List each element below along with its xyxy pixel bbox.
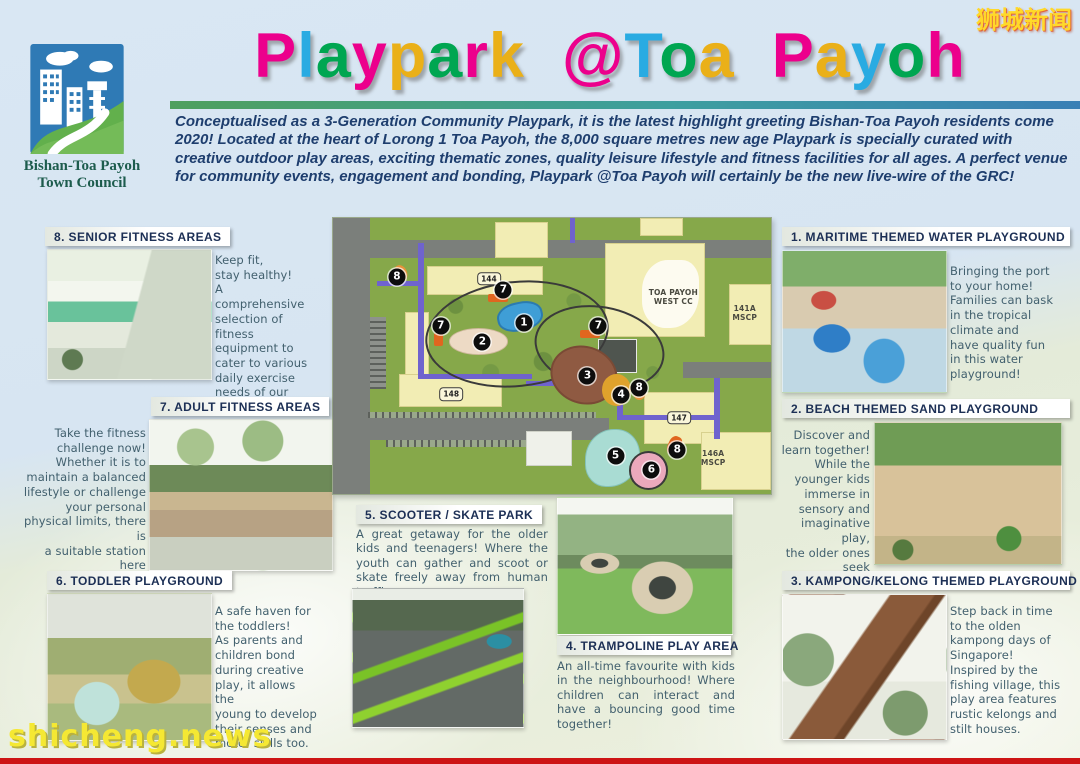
- map-footpath: [714, 378, 720, 439]
- map-building: [526, 431, 572, 467]
- section-header-scooter: 5. SCOOTER / SKATE PARK: [356, 505, 542, 524]
- map-marker-8: 8: [631, 380, 648, 397]
- map-marker-2: 2: [474, 334, 491, 351]
- town-council-name: Bishan-Toa Payoh Town Council: [2, 158, 162, 193]
- map-marker-7: 7: [432, 318, 449, 335]
- map-footpath: [570, 218, 576, 243]
- news-site-watermark-cn: 狮城新闻: [976, 8, 1072, 32]
- title-letter: y: [851, 21, 887, 91]
- scooter-park-rendering: [352, 588, 524, 728]
- section-header-adult-fitness: 7. ADULT FITNESS AREAS: [151, 397, 329, 416]
- section-header-trampoline: 4. TRAMPOLINE PLAY AREA: [557, 636, 731, 655]
- section-header-maritime: 1. MARITIME THEMED WATER PLAYGROUND: [782, 227, 1070, 246]
- map-road: [333, 218, 370, 494]
- town-council-logo-icon: [30, 44, 124, 154]
- section-body-trampoline: An all-time favourite with kids in the n…: [557, 659, 735, 731]
- section-body-maritime: Bringing the port to your home! Families…: [950, 264, 1062, 382]
- map-block-badge: 148: [439, 388, 463, 402]
- map-parking-strip: [370, 317, 385, 389]
- title-letter: P: [254, 21, 297, 91]
- title-letter: p: [388, 21, 427, 91]
- map-marker-3: 3: [579, 368, 596, 385]
- kampong-playground-rendering: [782, 594, 947, 740]
- map-marker-5: 5: [607, 448, 624, 465]
- title-letter: a: [316, 21, 352, 91]
- title-letter: y: [352, 21, 388, 91]
- map-marker-8: 8: [669, 441, 686, 458]
- trampoline-area-rendering: [557, 497, 733, 635]
- title-underline-bar: [170, 101, 1080, 109]
- title-letter: r: [463, 21, 489, 91]
- section-header-senior-fitness: 8. SENIOR FITNESS AREAS: [45, 227, 230, 246]
- map-label: TOA PAYOH WEST CC: [649, 288, 698, 306]
- map-marker-7: 7: [590, 318, 607, 335]
- title-letter: P: [772, 21, 815, 91]
- intro-paragraph: Conceptualised as a 3-Generation Communi…: [175, 113, 1073, 186]
- title-letter: @: [562, 21, 624, 91]
- title-letter: a: [427, 21, 463, 91]
- news-site-watermark-url: shicheng.news: [8, 722, 272, 752]
- map-label: 146A MSCP: [701, 449, 726, 467]
- bottom-red-bar: [0, 758, 1080, 764]
- map-marker-4: 4: [613, 386, 630, 403]
- map-building: [640, 218, 684, 236]
- section-header-toddler: 6. TODDLER PLAYGROUND: [47, 571, 232, 590]
- sand-playground-rendering: [874, 422, 1062, 565]
- map-marker-6: 6: [643, 462, 660, 479]
- map-marker-7: 7: [495, 281, 512, 298]
- title-letter: o: [659, 21, 698, 91]
- title-letter: k: [489, 21, 525, 91]
- senior-fitness-rendering: [47, 249, 212, 380]
- adult-fitness-rendering: [149, 419, 333, 571]
- section-body-senior-fitness: Keep fit, stay healthy! A comprehensive …: [215, 253, 315, 415]
- section-header-beach: 2. BEACH THEMED SAND PLAYGROUND: [782, 399, 1070, 418]
- map-road: [683, 362, 771, 379]
- title-letter: [735, 21, 772, 91]
- section-body-kampong: Step back in time to the olden kampong d…: [950, 604, 1068, 736]
- page-title: Playpark @Toa Payoh: [170, 20, 1050, 92]
- title-letter: [525, 21, 562, 91]
- title-letter: l: [297, 21, 316, 91]
- map-marker-8: 8: [388, 269, 405, 286]
- water-playground-rendering: [782, 250, 947, 393]
- map-footpath: [418, 243, 424, 378]
- title-letter: h: [926, 21, 965, 91]
- title-letter: T: [624, 21, 659, 91]
- title-letter: a: [699, 21, 735, 91]
- map-parking-strip: [368, 412, 596, 418]
- title-letter: a: [815, 21, 851, 91]
- map-building: [495, 222, 548, 258]
- map-label: 141A MSCP: [732, 304, 757, 322]
- title-letter: o: [887, 21, 926, 91]
- map-marker-1: 1: [515, 315, 532, 332]
- section-body-adult-fitness: Take the fitness challenge now! Whether …: [22, 426, 146, 588]
- section-body-beach: Discover and learn together! While the y…: [780, 428, 870, 590]
- map-block-badge: 147: [667, 411, 691, 425]
- playpark-poster: 狮城新闻 Bishan-Toa Payoh Town Council Playp…: [0, 0, 1080, 764]
- section-header-kampong: 3. KAMPONG/KELONG THEMED PLAYGROUND: [782, 571, 1070, 590]
- park-site-map: 144148147 TOA PAYOH WEST CC141A MSCP146A…: [332, 217, 772, 495]
